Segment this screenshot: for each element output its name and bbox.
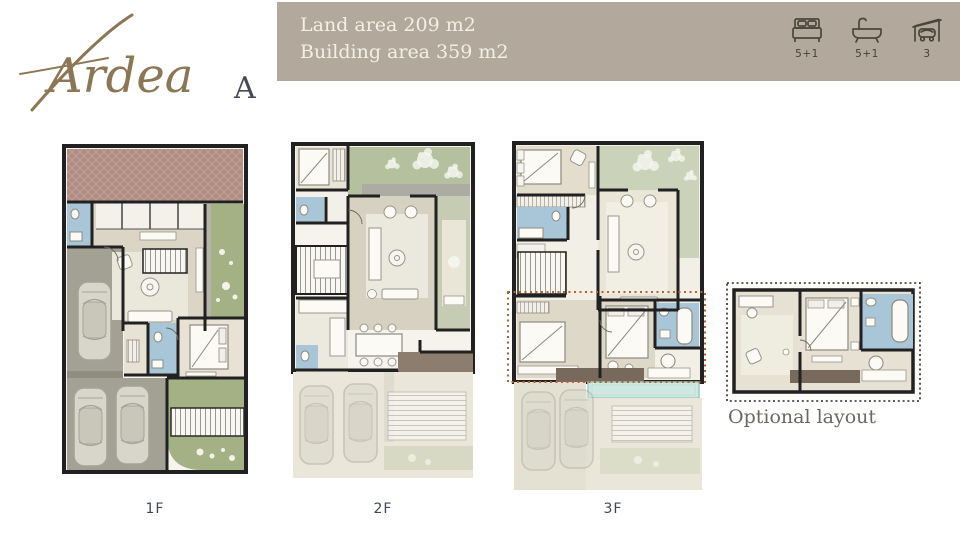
stat-bedrooms: 5+1 <box>786 15 828 60</box>
stat-garage: 3 <box>906 15 948 60</box>
logo-script-text: Ardea <box>44 48 193 104</box>
floorplan-3f <box>508 143 705 490</box>
plan-label-2f: 2F <box>328 501 438 517</box>
area-info: Land area 209 m2 Building area 359 m2 <box>300 12 508 66</box>
bath-icon <box>850 15 884 45</box>
bed-icon <box>790 15 824 45</box>
plan-label-3f: 3F <box>558 501 668 517</box>
page: Ardea A Land area 209 m2 Building area 3… <box>0 0 960 540</box>
floorplan-2f <box>293 144 473 478</box>
logo-graphic: Ardea A <box>8 2 278 120</box>
plan-label-1f: 1F <box>100 501 210 517</box>
optional-layout-caption: Optional layout <box>728 406 876 428</box>
garage-count: 3 <box>923 48 930 60</box>
garage-icon <box>910 15 944 45</box>
logo: Ardea A <box>8 2 278 120</box>
floorplan-1f <box>64 146 246 472</box>
header-banner: Land area 209 m2 Building area 359 m2 5+… <box>277 2 960 81</box>
logo-variant-letter: A <box>233 71 256 106</box>
bedrooms-count: 5+1 <box>795 48 819 60</box>
stat-bathrooms: 5+1 <box>846 15 888 60</box>
stats-row: 5+1 5+1 <box>786 15 948 60</box>
building-area-text: Building area 359 m2 <box>300 39 508 66</box>
floorplan-optional <box>727 283 920 401</box>
bathrooms-count: 5+1 <box>855 48 879 60</box>
land-area-text: Land area 209 m2 <box>300 12 508 39</box>
